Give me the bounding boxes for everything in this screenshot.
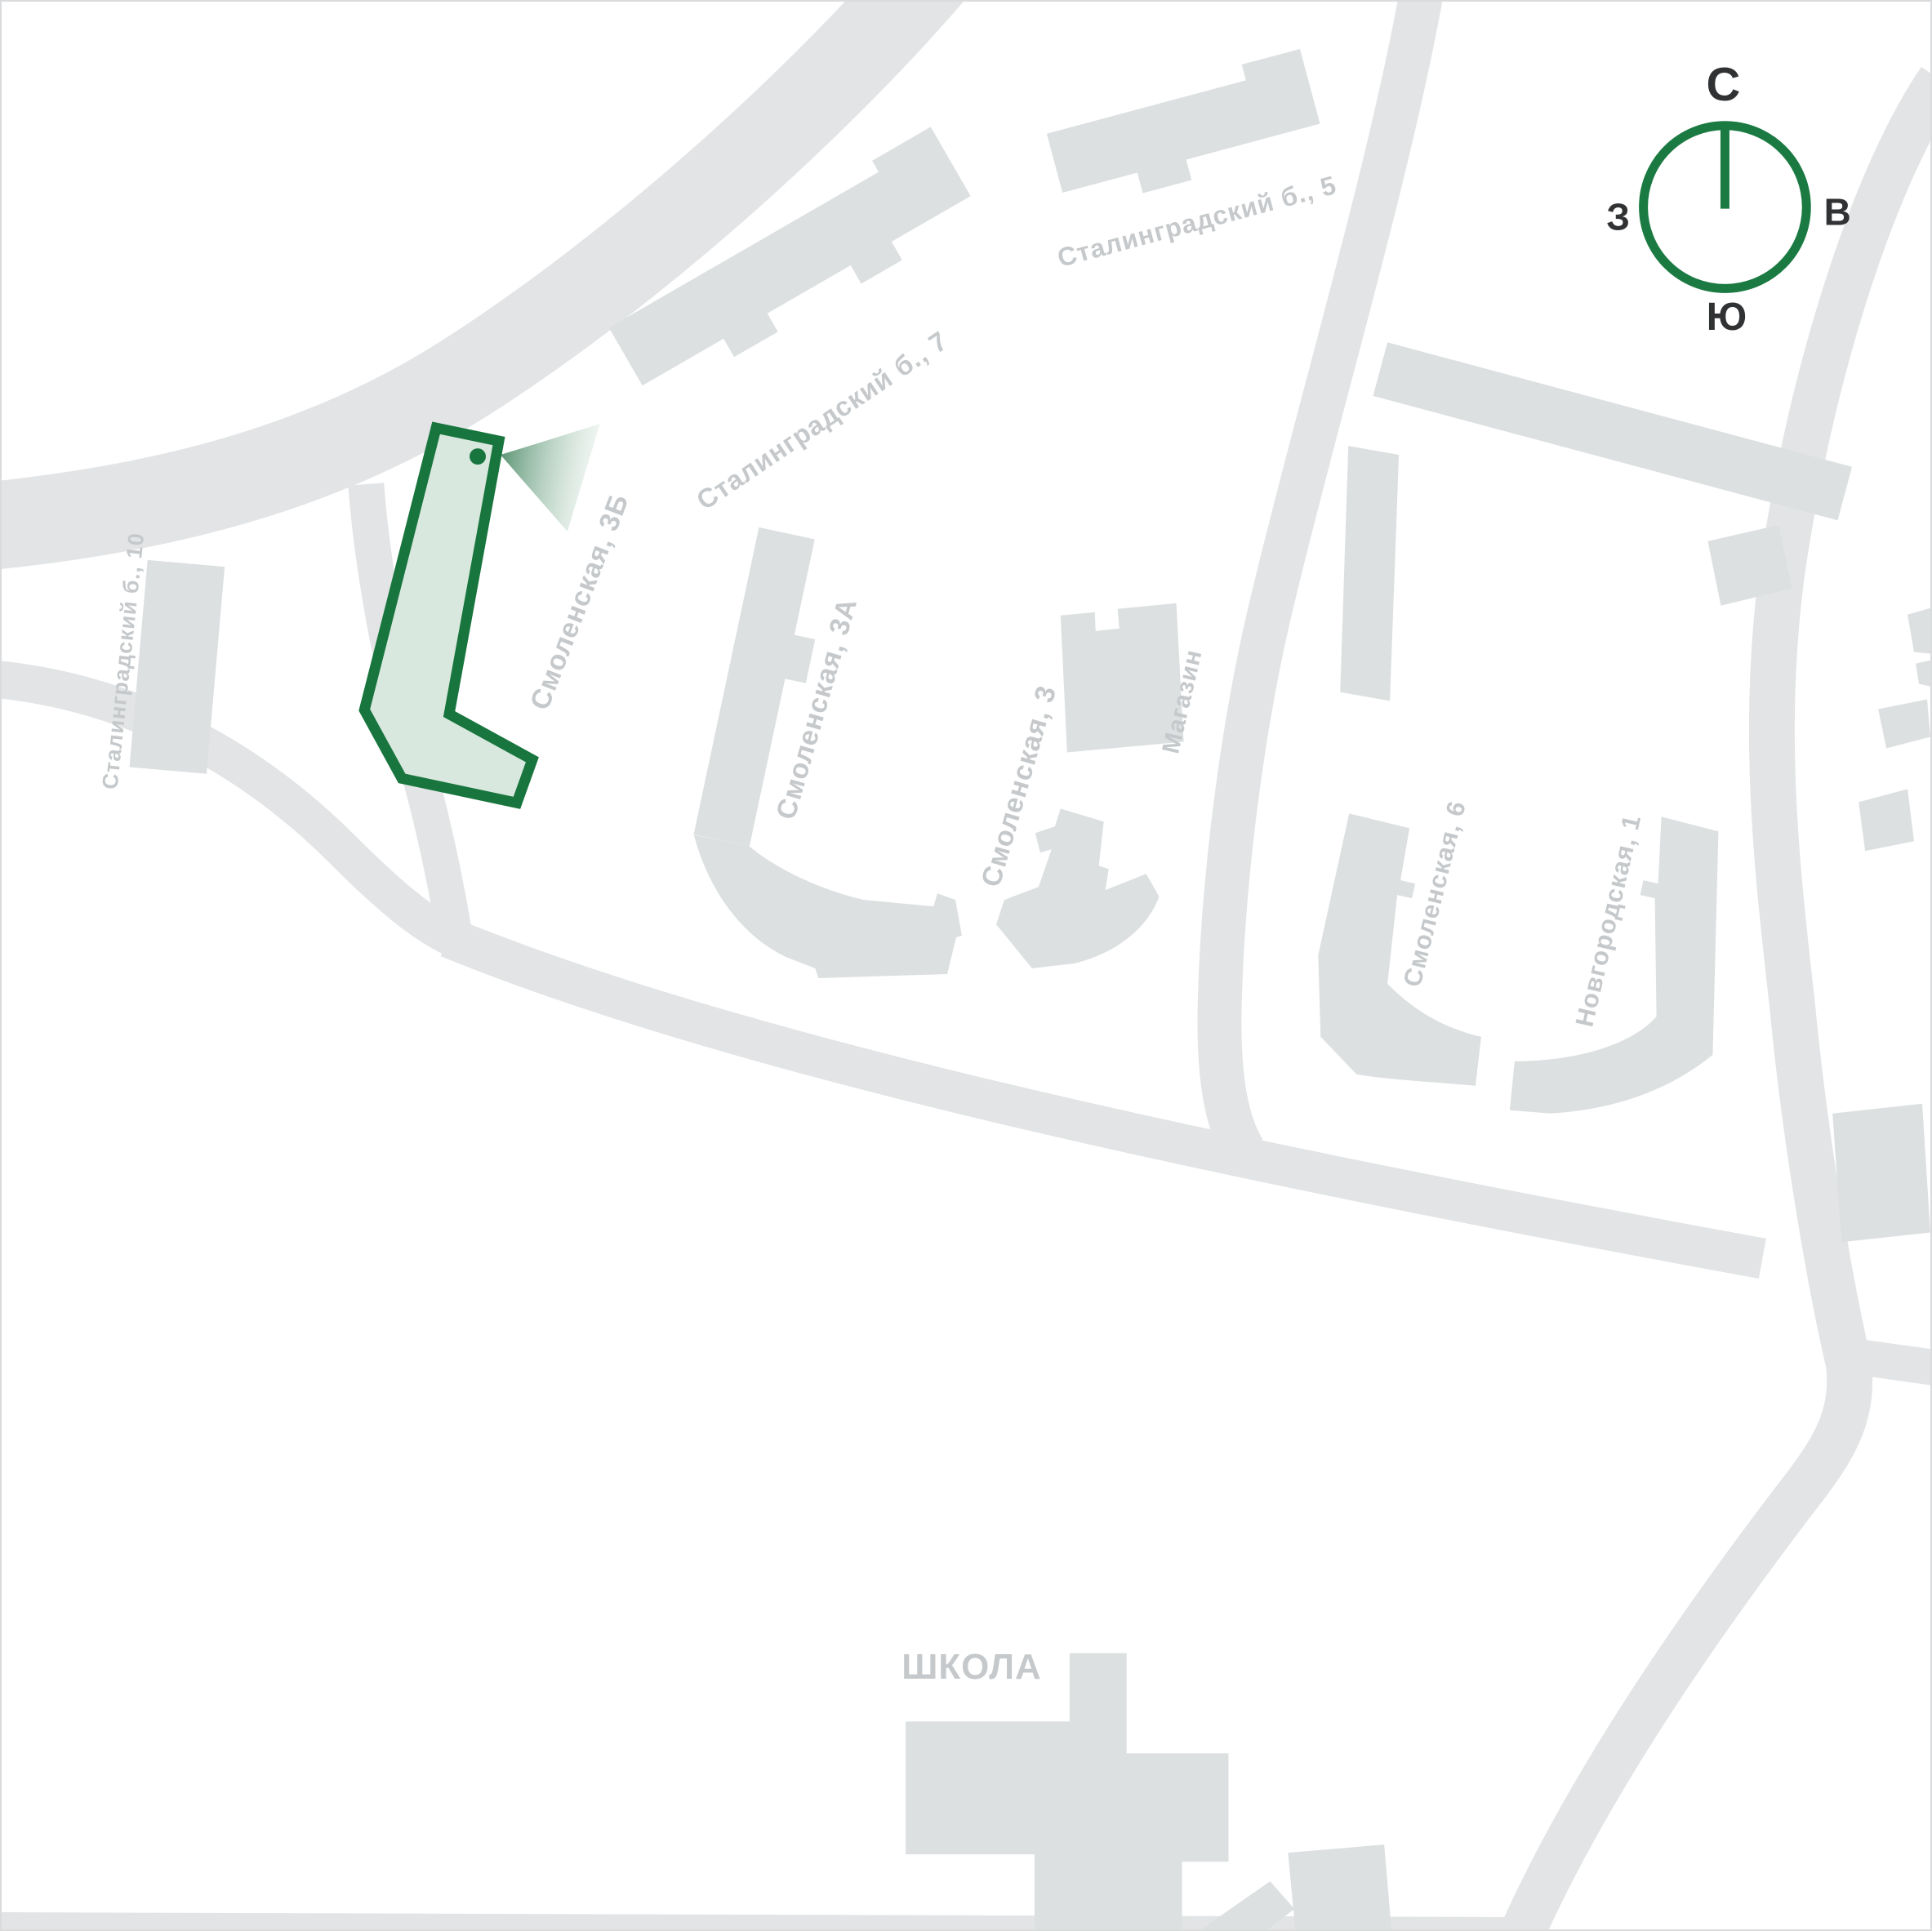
building-fragment	[1908, 608, 1930, 654]
building-square-east	[1832, 1104, 1930, 1243]
building-school	[906, 1653, 1228, 1929]
building-right-block-north	[1373, 342, 1853, 520]
roads-layer	[2, 2, 1930, 1929]
compass-south-label: Ю	[1707, 296, 1747, 339]
building-school-annex	[1288, 1844, 1391, 1929]
building-fragment	[1859, 789, 1914, 851]
highlighted-building-smolenskaya-3b[interactable]	[364, 428, 532, 803]
building-smolenskaya-3a-wing	[694, 834, 962, 978]
map-label-school: ШКОЛА	[901, 1647, 1041, 1687]
view-cone	[501, 424, 600, 532]
map-label-novgorodskaya-1: Новгородская, 1	[1569, 812, 1646, 1030]
compass-north-label: С	[1707, 59, 1741, 111]
building-fragment	[1878, 700, 1930, 749]
building-right-block-west	[1340, 446, 1399, 701]
building-fragment	[1916, 661, 1930, 687]
map-label-smolenskaya-3b: Смоленская, 3Б	[524, 489, 635, 714]
compass-west-label: З	[1606, 196, 1630, 238]
map-label-stalingradsky-7: Сталинградский б., 7	[691, 325, 953, 515]
compass-rose: С З В Ю	[1606, 59, 1851, 339]
compass-east-label: В	[1824, 191, 1851, 234]
camera-point-icon	[470, 448, 486, 465]
site-plan-map: Сталинградский б., 7 Сталинградский б., …	[0, 0, 1932, 1931]
map-label-stalingradsky-5: Сталинградский б., 5	[1054, 170, 1339, 273]
road-east-stub	[1842, 1355, 1930, 1368]
